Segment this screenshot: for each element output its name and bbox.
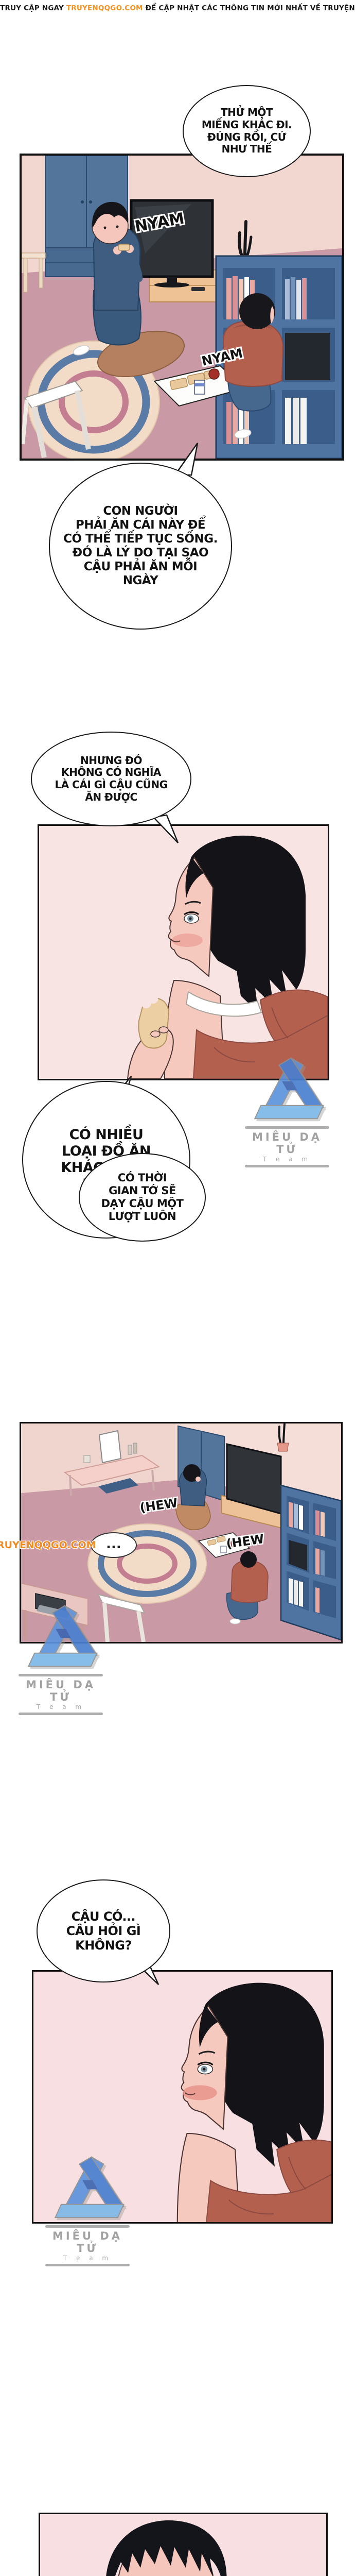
speech-text-1: THỬ MỘT MIẾNG KHÁC ĐI. ĐÚNG RỒI, CỨ NHƯ … [202, 107, 292, 155]
bread-slice [139, 994, 169, 1048]
mirror [99, 1431, 121, 1463]
logo-divider [45, 2225, 130, 2228]
logo-divider [245, 1165, 329, 1167]
team-sub: T e a m [241, 1156, 333, 1163]
ellipsis-text: ... [106, 1536, 121, 1552]
logo-divider [19, 1713, 103, 1715]
speech-bubble-1: THỬ MỘT MIẾNG KHÁC ĐI. ĐÚNG RỒI, CỨ NHƯ … [183, 85, 311, 177]
speech-bubble-6: CẬU CÓ... CÂU HỎI GÌ KHÔNG? [37, 1879, 170, 1982]
team-name: MIÊU DẠ TỬ [41, 2230, 134, 2255]
speech-text-2: CON NGƯỜI PHẢI ĂN CÁI NÀY ĐỂ CÓ THỂ TIẾP… [63, 504, 218, 588]
banner-suffix: ĐỂ CẬP NHẬT CÁC THÔNG TIN MỚI NHẤT VỀ TR… [143, 4, 355, 12]
logo-divider [245, 1126, 329, 1129]
panel-2-girl-profile [38, 824, 329, 1080]
watermark-logo-3: MIÊU DẠ TỬ T e a m [41, 2150, 134, 2268]
banner-site-link: TRUYENQQGO.COM [66, 4, 143, 12]
remote-control [191, 287, 205, 291]
team-logo-icon [46, 2150, 129, 2223]
bookshelf [281, 1485, 341, 1640]
panel-5-art: .... [40, 2514, 326, 2576]
logo-divider [19, 1674, 103, 1676]
team-logo-icon [246, 1051, 328, 1124]
team-logo-icon [20, 1599, 102, 1672]
speech-bubble-3: NHƯNG ĐÓ KHÔNG CÓ NGHĨA LÀ CÁI GÌ CẬU CŨ… [31, 732, 191, 826]
panel-1-living-room: NYAM NYAM [20, 154, 344, 461]
jam-jar [209, 369, 219, 379]
team-name: MIÊU DẠ TỬ [241, 1131, 333, 1156]
panel-1-art: NYAM NYAM [22, 156, 342, 459]
logo-divider [45, 2264, 130, 2266]
speech-text-5: CÓ THỜI GIAN TỚ SẼ DẠY CẬU MỘT LƯỢT LUÔN [101, 1172, 184, 1223]
blush [183, 2085, 217, 2100]
speech-bubble-2: CON NGƯỜI PHẢI ĂN CÁI NÀY ĐỂ CÓ THỂ TIẾP… [49, 463, 232, 630]
watermark-logo-2: MIÊU DẠ TỬ T e a m [14, 1599, 107, 1717]
ellipsis-bubble: ... [91, 1533, 136, 1557]
comic-page: TRUY CẬP NGAY TRUYENQQGO.COM ĐỂ CẬP NHẬT… [0, 0, 355, 2576]
banner-prefix: TRUY CẬP NGAY [0, 4, 66, 12]
team-sub: T e a m [41, 2255, 134, 2262]
watermark-site-text: RUYENQQGO.COM [0, 1539, 96, 1551]
milk-carton [194, 380, 205, 394]
speech-text-6: CẬU CÓ... CÂU HỎI GÌ KHÔNG? [66, 1909, 141, 1953]
watermark-logo-1: MIÊU DẠ TỬ T e a m [241, 1051, 333, 1170]
team-name: MIÊU DẠ TỬ [14, 1679, 107, 1703]
speech-bubble-5: CÓ THỜI GIAN TỚ SẼ DẠY CẬU MỘT LƯỢT LUÔN [79, 1153, 206, 1242]
speech-text-3: NHƯNG ĐÓ KHÔNG CÓ NGHĨA LÀ CÁI GÌ CẬU CŨ… [55, 755, 168, 803]
team-sub: T e a m [14, 1703, 107, 1710]
panel-2-art [39, 826, 328, 1079]
panel-5-boy-portrait: .... [39, 2513, 328, 2576]
site-banner-top: TRUY CẬP NGAY TRUYENQQGO.COM ĐỂ CẬP NHẬT… [0, 4, 355, 12]
blush [172, 934, 203, 947]
